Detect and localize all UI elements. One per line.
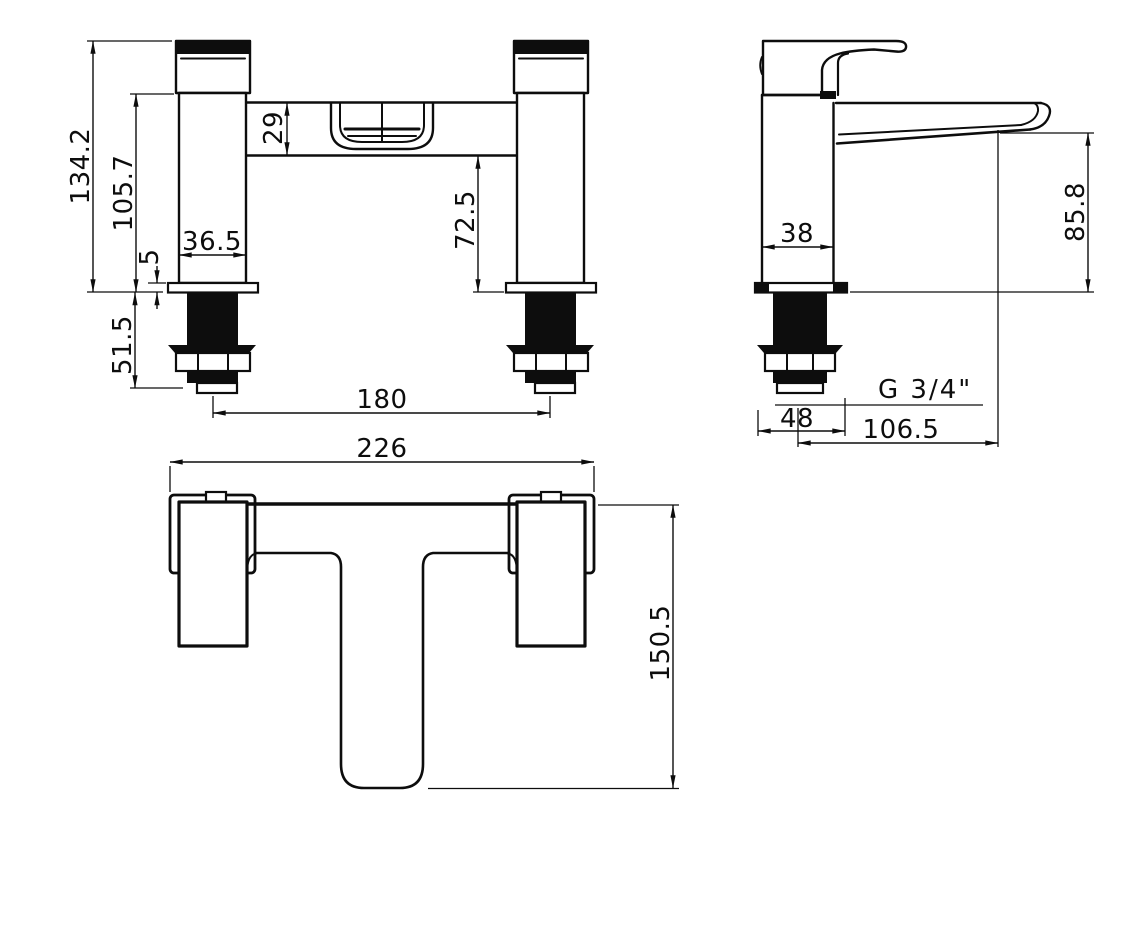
dim-label-overall-height: 134.2 xyxy=(66,128,96,205)
dim-shank-length: 51.5 xyxy=(108,293,183,389)
thread-size-label: G 3/4" xyxy=(878,375,972,405)
dim-label-body-section-height: 29 xyxy=(259,111,289,145)
side-handle-lever xyxy=(760,41,906,95)
plan-left-handle xyxy=(170,492,255,646)
front-view: 134.2 105.7 5 51.5 36.5 29 xyxy=(66,41,596,418)
side-spout xyxy=(836,103,1050,144)
dim-label-pillar-width: 36.5 xyxy=(182,227,242,257)
dim-overall-width: 226 xyxy=(170,434,594,492)
dim-label-deck-to-body-clearance: 72.5 xyxy=(451,190,481,250)
dim-pillar-width: 36.5 xyxy=(179,227,246,257)
dim-label-height-to-body: 105.7 xyxy=(109,155,139,232)
front-left-pillar xyxy=(168,41,258,393)
dim-label-base-plate-depth: 48 xyxy=(780,404,814,434)
side-column-body xyxy=(762,91,836,283)
dim-label-spout-reach: 106.5 xyxy=(863,415,940,445)
front-right-pillar xyxy=(506,41,596,393)
dim-label-spout-outlet-height: 85.8 xyxy=(1061,182,1091,242)
dim-label-body-depth: 38 xyxy=(780,219,814,249)
drawing-canvas: 134.2 105.7 5 51.5 36.5 29 xyxy=(0,0,1140,946)
side-base-shank xyxy=(755,283,847,393)
side-view: 38 85.8 G 3/4" 48 106.5 xyxy=(755,41,1094,447)
dim-tap-hole-centres: 180 xyxy=(213,385,550,418)
plan-right-handle xyxy=(509,492,594,646)
technical-drawing-page: 134.2 105.7 5 51.5 36.5 29 xyxy=(0,0,1140,946)
dim-body-depth: 38 xyxy=(762,219,833,249)
dim-base-plate-depth: 48 xyxy=(758,398,845,436)
dim-body-section-height: 29 xyxy=(259,103,289,155)
dim-label-shank-length: 51.5 xyxy=(108,315,138,375)
plan-deck-and-spout xyxy=(247,504,517,788)
dim-deck-plate-thickness: 5 xyxy=(135,248,166,309)
dim-deck-to-body-clearance: 72.5 xyxy=(451,156,504,292)
plan-view: 226 150.5 xyxy=(170,434,679,789)
dim-label-tap-hole-centres: 180 xyxy=(356,385,407,415)
dim-spout-outlet-height: 85.8 xyxy=(850,133,1094,292)
dim-label-overall-depth: 150.5 xyxy=(646,605,676,682)
dim-label-deck-plate-thickness: 5 xyxy=(135,248,165,265)
dim-label-overall-width: 226 xyxy=(356,434,407,464)
spout-front-profile xyxy=(331,103,433,149)
